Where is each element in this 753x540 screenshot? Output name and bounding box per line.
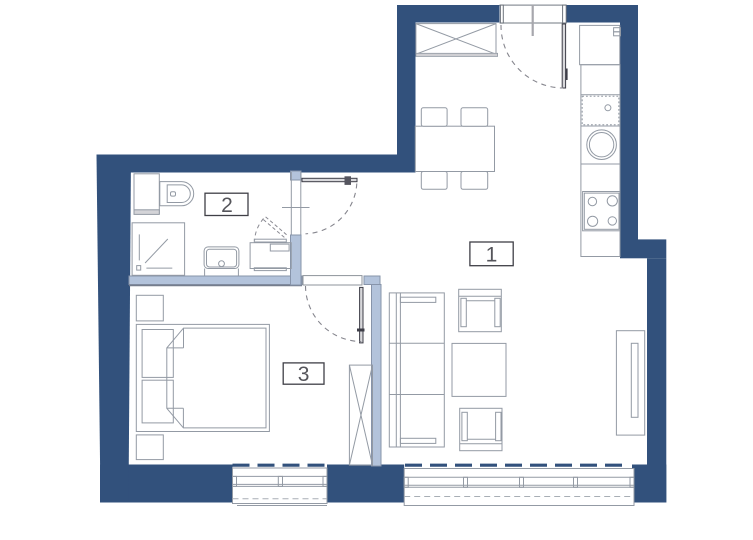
svg-text:2: 2 [221, 194, 233, 217]
svg-text:1: 1 [486, 244, 498, 267]
svg-text:3: 3 [298, 363, 310, 386]
